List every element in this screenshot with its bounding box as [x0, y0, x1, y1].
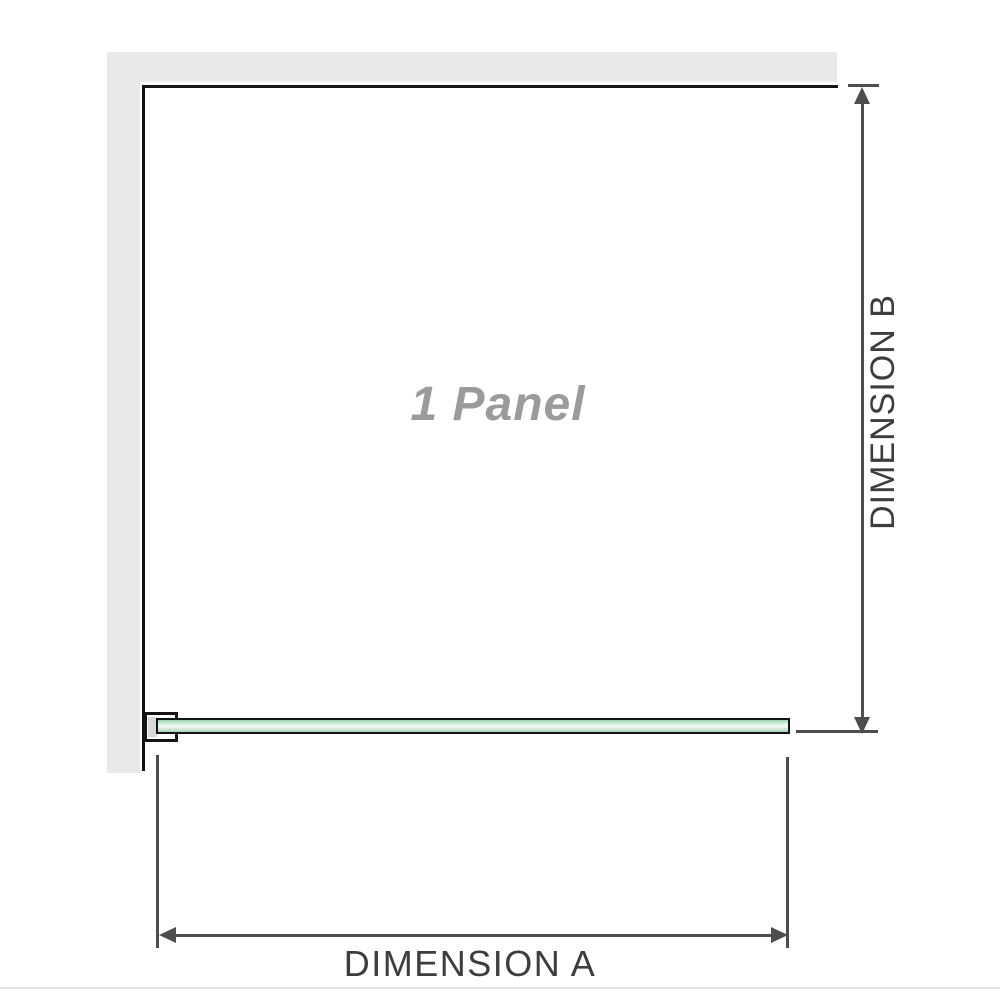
wall-left [107, 52, 140, 773]
arrow-down-icon [854, 717, 870, 734]
enclosure-top-border [142, 85, 838, 88]
panel-count-label: 1 Panel [298, 372, 698, 436]
wall-top [107, 52, 837, 82]
dimension-a-extension-right [786, 757, 789, 948]
dimension-a-line [163, 934, 784, 937]
dimension-a-extension-left [156, 755, 159, 948]
bottom-edge-rule [0, 987, 1000, 989]
arrow-up-icon [854, 87, 870, 104]
glass-panel [156, 718, 790, 734]
dimension-b-label: DIMENSION B [863, 212, 903, 612]
enclosure-left-border [142, 85, 145, 771]
arrow-left-icon [159, 927, 176, 943]
dimension-a-label: DIMENSION A [270, 944, 670, 984]
arrow-right-icon [771, 927, 788, 943]
